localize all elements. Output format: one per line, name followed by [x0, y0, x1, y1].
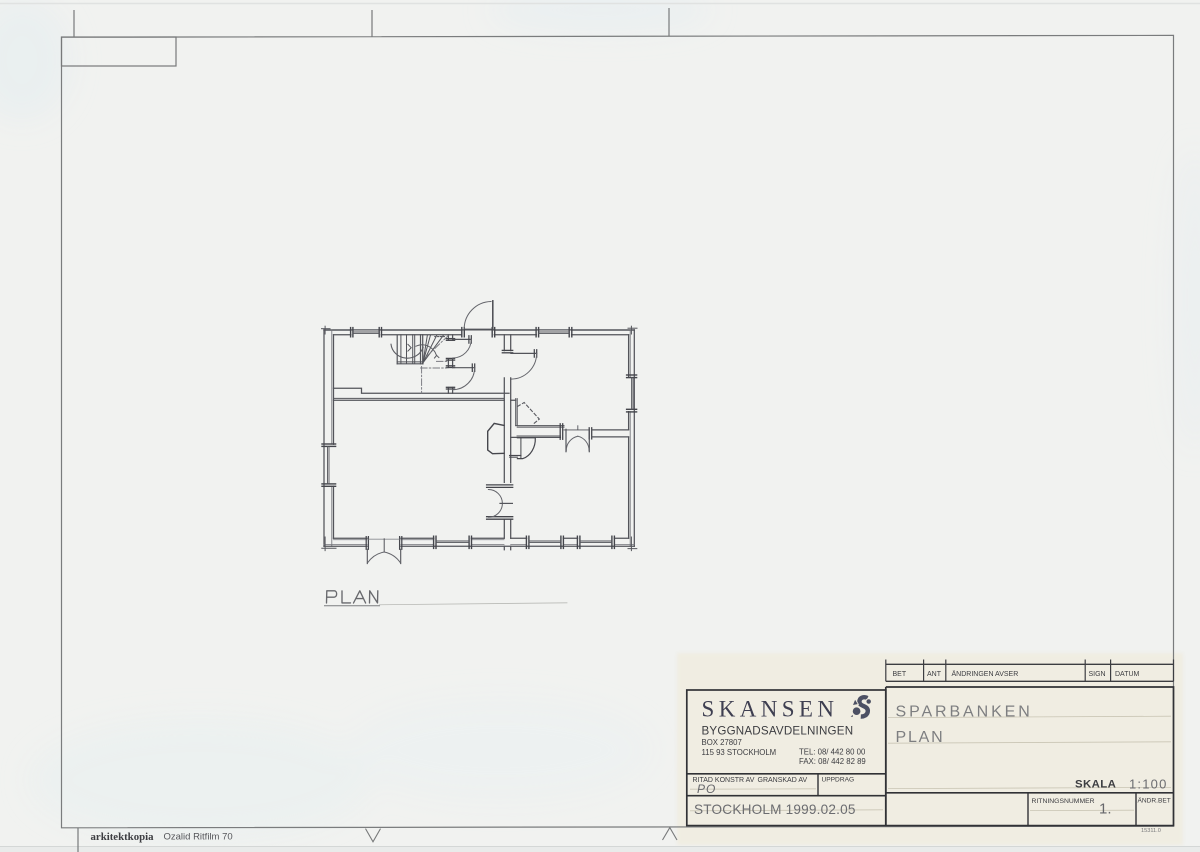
svg-text:STOCKHOLM 1999.02.05: STOCKHOLM 1999.02.05 — [694, 802, 856, 817]
svg-text:PO: PO — [697, 782, 716, 796]
svg-text:1:100: 1:100 — [1129, 777, 1168, 792]
svg-text:BOX 27807: BOX 27807 — [702, 738, 742, 747]
svg-text:ANT: ANT — [927, 671, 942, 678]
svg-text:1.: 1. — [1099, 801, 1112, 818]
svg-text:SIGN: SIGN — [1089, 671, 1106, 678]
svg-text:ÄNDR.BET: ÄNDR.BET — [1138, 797, 1171, 805]
svg-text:UPPDRAG: UPPDRAG — [822, 777, 855, 784]
svg-text:RITNINGSNUMMER: RITNINGSNUMMER — [1032, 798, 1095, 805]
svg-text:ÄNDRINGEN AVSER: ÄNDRINGEN AVSER — [952, 670, 1019, 678]
svg-text:SKANSEN: SKANSEN — [702, 697, 839, 722]
svg-text:SPARBANKEN: SPARBANKEN — [896, 704, 1033, 721]
svg-text:TEL: 08/ 442 80 00: TEL: 08/ 442 80 00 — [799, 748, 866, 757]
svg-text:SKALA: SKALA — [1075, 779, 1116, 791]
svg-text:115 93 STOCKHOLM: 115 93 STOCKHOLM — [702, 748, 777, 757]
svg-text:15311.0: 15311.0 — [1141, 828, 1161, 834]
svg-text:FAX: 08/ 442 82 89: FAX: 08/ 442 82 89 — [799, 757, 866, 766]
svg-text:BET: BET — [893, 671, 907, 678]
svg-text:DATUM: DATUM — [1115, 671, 1140, 678]
svg-text:PLAN: PLAN — [896, 729, 945, 746]
svg-text:GRANSKAD AV: GRANSKAD AV — [758, 777, 808, 784]
svg-text:arkitektkopia: arkitektkopia — [91, 831, 155, 843]
svg-text:BYGGNADSAVDELNINGEN: BYGGNADSAVDELNINGEN — [702, 725, 854, 738]
svg-text:Ozalid Ritfilm 70: Ozalid Ritfilm 70 — [164, 832, 233, 843]
